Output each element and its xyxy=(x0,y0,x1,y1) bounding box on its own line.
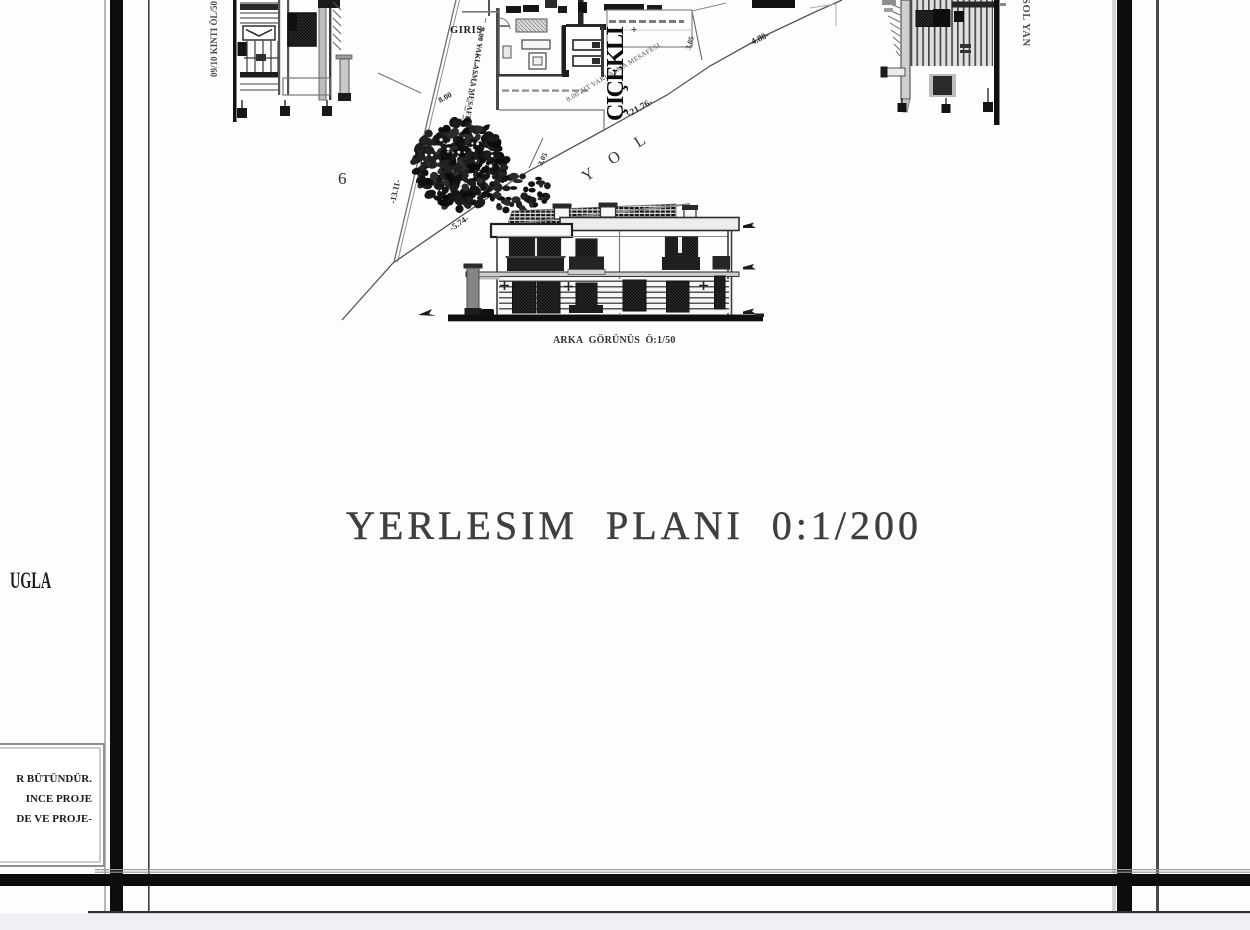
svg-text:-5.74-: -5.74- xyxy=(448,213,471,233)
svg-text:UGLA: UGLA xyxy=(10,569,51,594)
svg-text:ÇIÇEKLI: ÇIÇEKLI xyxy=(603,26,629,121)
svg-text:-21.76-: -21.76- xyxy=(626,97,655,119)
svg-text:INCE PROJE: INCE PROJE xyxy=(26,793,92,805)
svg-text:3.05: 3.05 xyxy=(536,151,550,167)
svg-text:SOL YAN: SOL YAN xyxy=(1020,0,1031,47)
svg-text:3.05: 3.05 xyxy=(683,35,696,51)
svg-text:DE VE PROJE-: DE VE PROJE- xyxy=(16,813,92,825)
svg-text:6: 6 xyxy=(338,169,347,188)
svg-text:8.00 YAKLASMA MESAFESI: 8.00 YAKLASMA MESAFESI xyxy=(462,27,487,129)
svg-text:-4.80-: -4.80- xyxy=(747,30,771,48)
svg-text:ARKA GÖRÜNÜS Ö:1/50: ARKA GÖRÜNÜS Ö:1/50 xyxy=(553,333,676,346)
svg-text:R BÜTÜNDÜR.: R BÜTÜNDÜR. xyxy=(16,772,92,785)
svg-text:09/10 KINTI ÖL/50: 09/10 KINTI ÖL/50 xyxy=(209,0,219,77)
svg-text:YERLESIM PLANI 0:1/200: YERLESIM PLANI 0:1/200 xyxy=(346,503,922,548)
svg-text:-13.11-: -13.11- xyxy=(387,178,402,204)
svg-text:Y O L: Y O L xyxy=(579,127,656,185)
svg-text:8.00: 8.00 xyxy=(437,90,454,105)
